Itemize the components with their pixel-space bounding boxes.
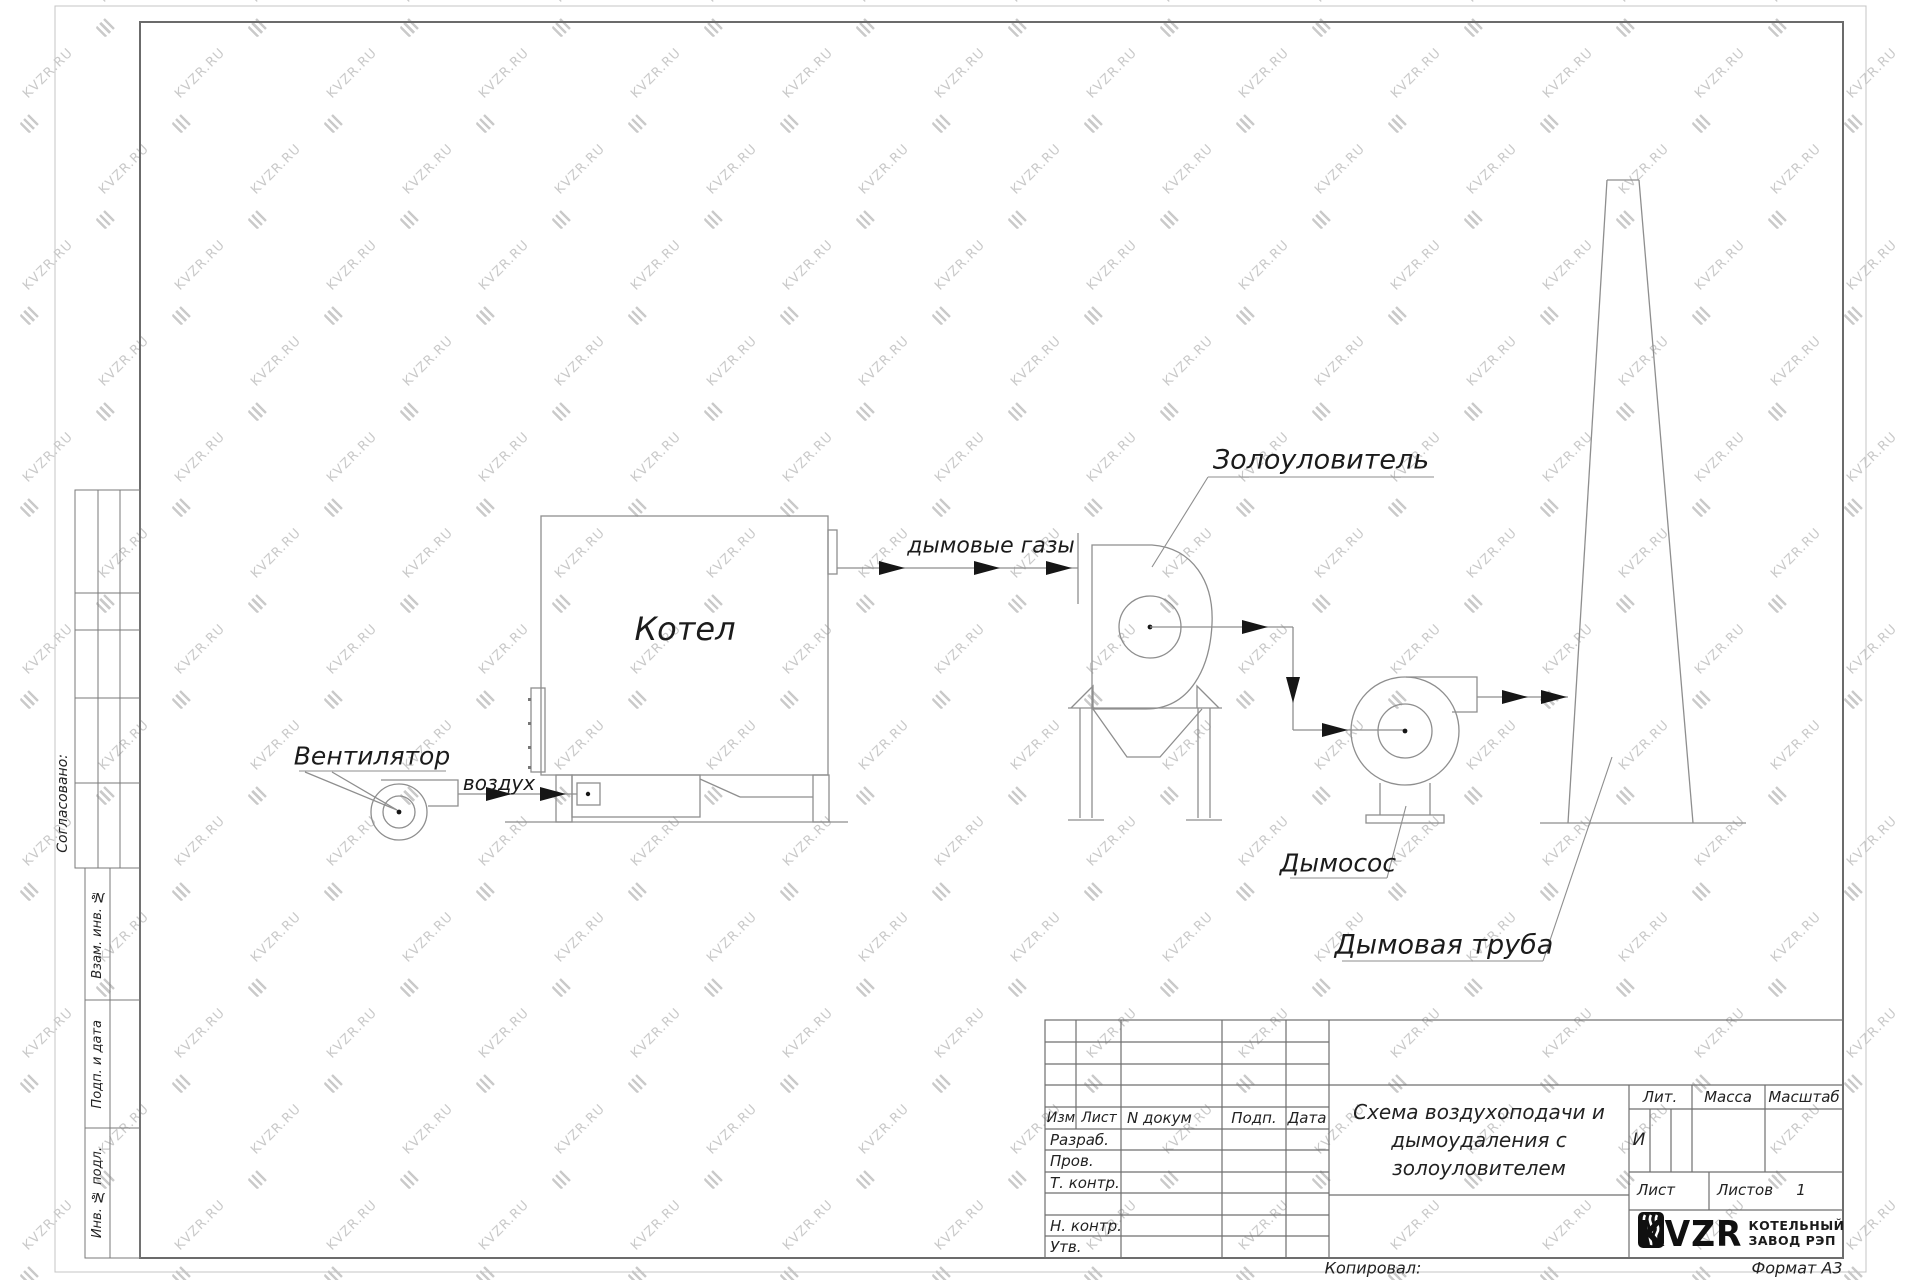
mass-header: Масса [1704, 1088, 1752, 1106]
sheets-label: Листов [1717, 1181, 1773, 1199]
fan-label: Вентилятор [294, 742, 450, 771]
chimney-drawing [1540, 180, 1746, 823]
row-utv: Утв. [1050, 1238, 1082, 1256]
col-list: Лист [1081, 1110, 1116, 1126]
chimney-label: Дымовая труба [1335, 930, 1554, 961]
company-name: КОТЕЛЬНЫЙ ЗАВОД РЭП [1748, 1218, 1844, 1248]
fan-drawing [299, 771, 577, 840]
row-tkontr: Т. контр. [1050, 1174, 1120, 1192]
company-line2: ЗАВОД РЭП [1748, 1233, 1844, 1248]
lit-value: И [1633, 1130, 1646, 1150]
row-nkontr: Н. контр. [1050, 1217, 1122, 1235]
doc-title-line1: Схема воздухоподачи и [1353, 1100, 1605, 1124]
boiler-drawing [505, 516, 1078, 822]
col-doc: N докум [1127, 1109, 1192, 1127]
stamp-cell-vzam: Взам. инв. № [85, 868, 110, 1000]
flow-arrows [486, 561, 1567, 801]
drawing-sheet: KVZR.RUKVZR.RUKVZR.RUKVZR.RUKVZR.RUKVZR.… [0, 0, 1920, 1280]
drawing-linework [0, 0, 1920, 1280]
stamp-vzam-label: Взам. инв. № [90, 889, 105, 979]
sheet-frame [55, 6, 1866, 1272]
agreed-label: Согласовано: [55, 754, 71, 853]
scale-header: Масштаб [1768, 1088, 1839, 1106]
flue-gases-label: дымовые газы [907, 534, 1075, 559]
ash-collector-label: Золоуловитель [1213, 445, 1429, 476]
col-sign: Подп. [1231, 1109, 1276, 1127]
smoke-exhauster-drawing [1351, 677, 1568, 823]
row-razrab: Разраб. [1050, 1131, 1109, 1149]
lit-header: Лит. [1643, 1088, 1678, 1106]
label-leaders [1152, 477, 1612, 961]
col-izm: Изм [1047, 1110, 1075, 1126]
col-date: Дата [1288, 1109, 1327, 1127]
logo-text: KVZR [1638, 1212, 1742, 1254]
boiler-label: Котел [634, 610, 735, 648]
doc-title-line2: дымоудаления с [1391, 1128, 1566, 1152]
stamp-podp-label: Подп. и дата [90, 1020, 105, 1109]
format-label: Формат А3 [1751, 1259, 1842, 1278]
agreed-cell: Согласовано: [52, 738, 74, 868]
logo-block: KVZR КОТЕЛЬНЫЙ ЗАВОД РЭП [1638, 1212, 1845, 1254]
copied-label: Копировал: [1325, 1259, 1422, 1278]
sheets-value: 1 [1796, 1181, 1806, 1199]
air-label: воздух [463, 771, 535, 795]
ash-collector-drawing [1068, 533, 1403, 820]
row-prov: Пров. [1050, 1152, 1094, 1170]
stamp-cell-inv: Инв. № подл. [85, 1128, 110, 1258]
sheet-label: Лист [1637, 1181, 1675, 1199]
stamp-cell-podp: Подп. и дата [85, 1000, 110, 1128]
smoke-exhauster-label: Дымосос [1280, 849, 1396, 878]
stamp-inv-label: Инв. № подл. [90, 1147, 105, 1238]
company-line1: КОТЕЛЬНЫЙ [1748, 1218, 1844, 1233]
doc-title-line3: золоуловителем [1392, 1156, 1566, 1180]
